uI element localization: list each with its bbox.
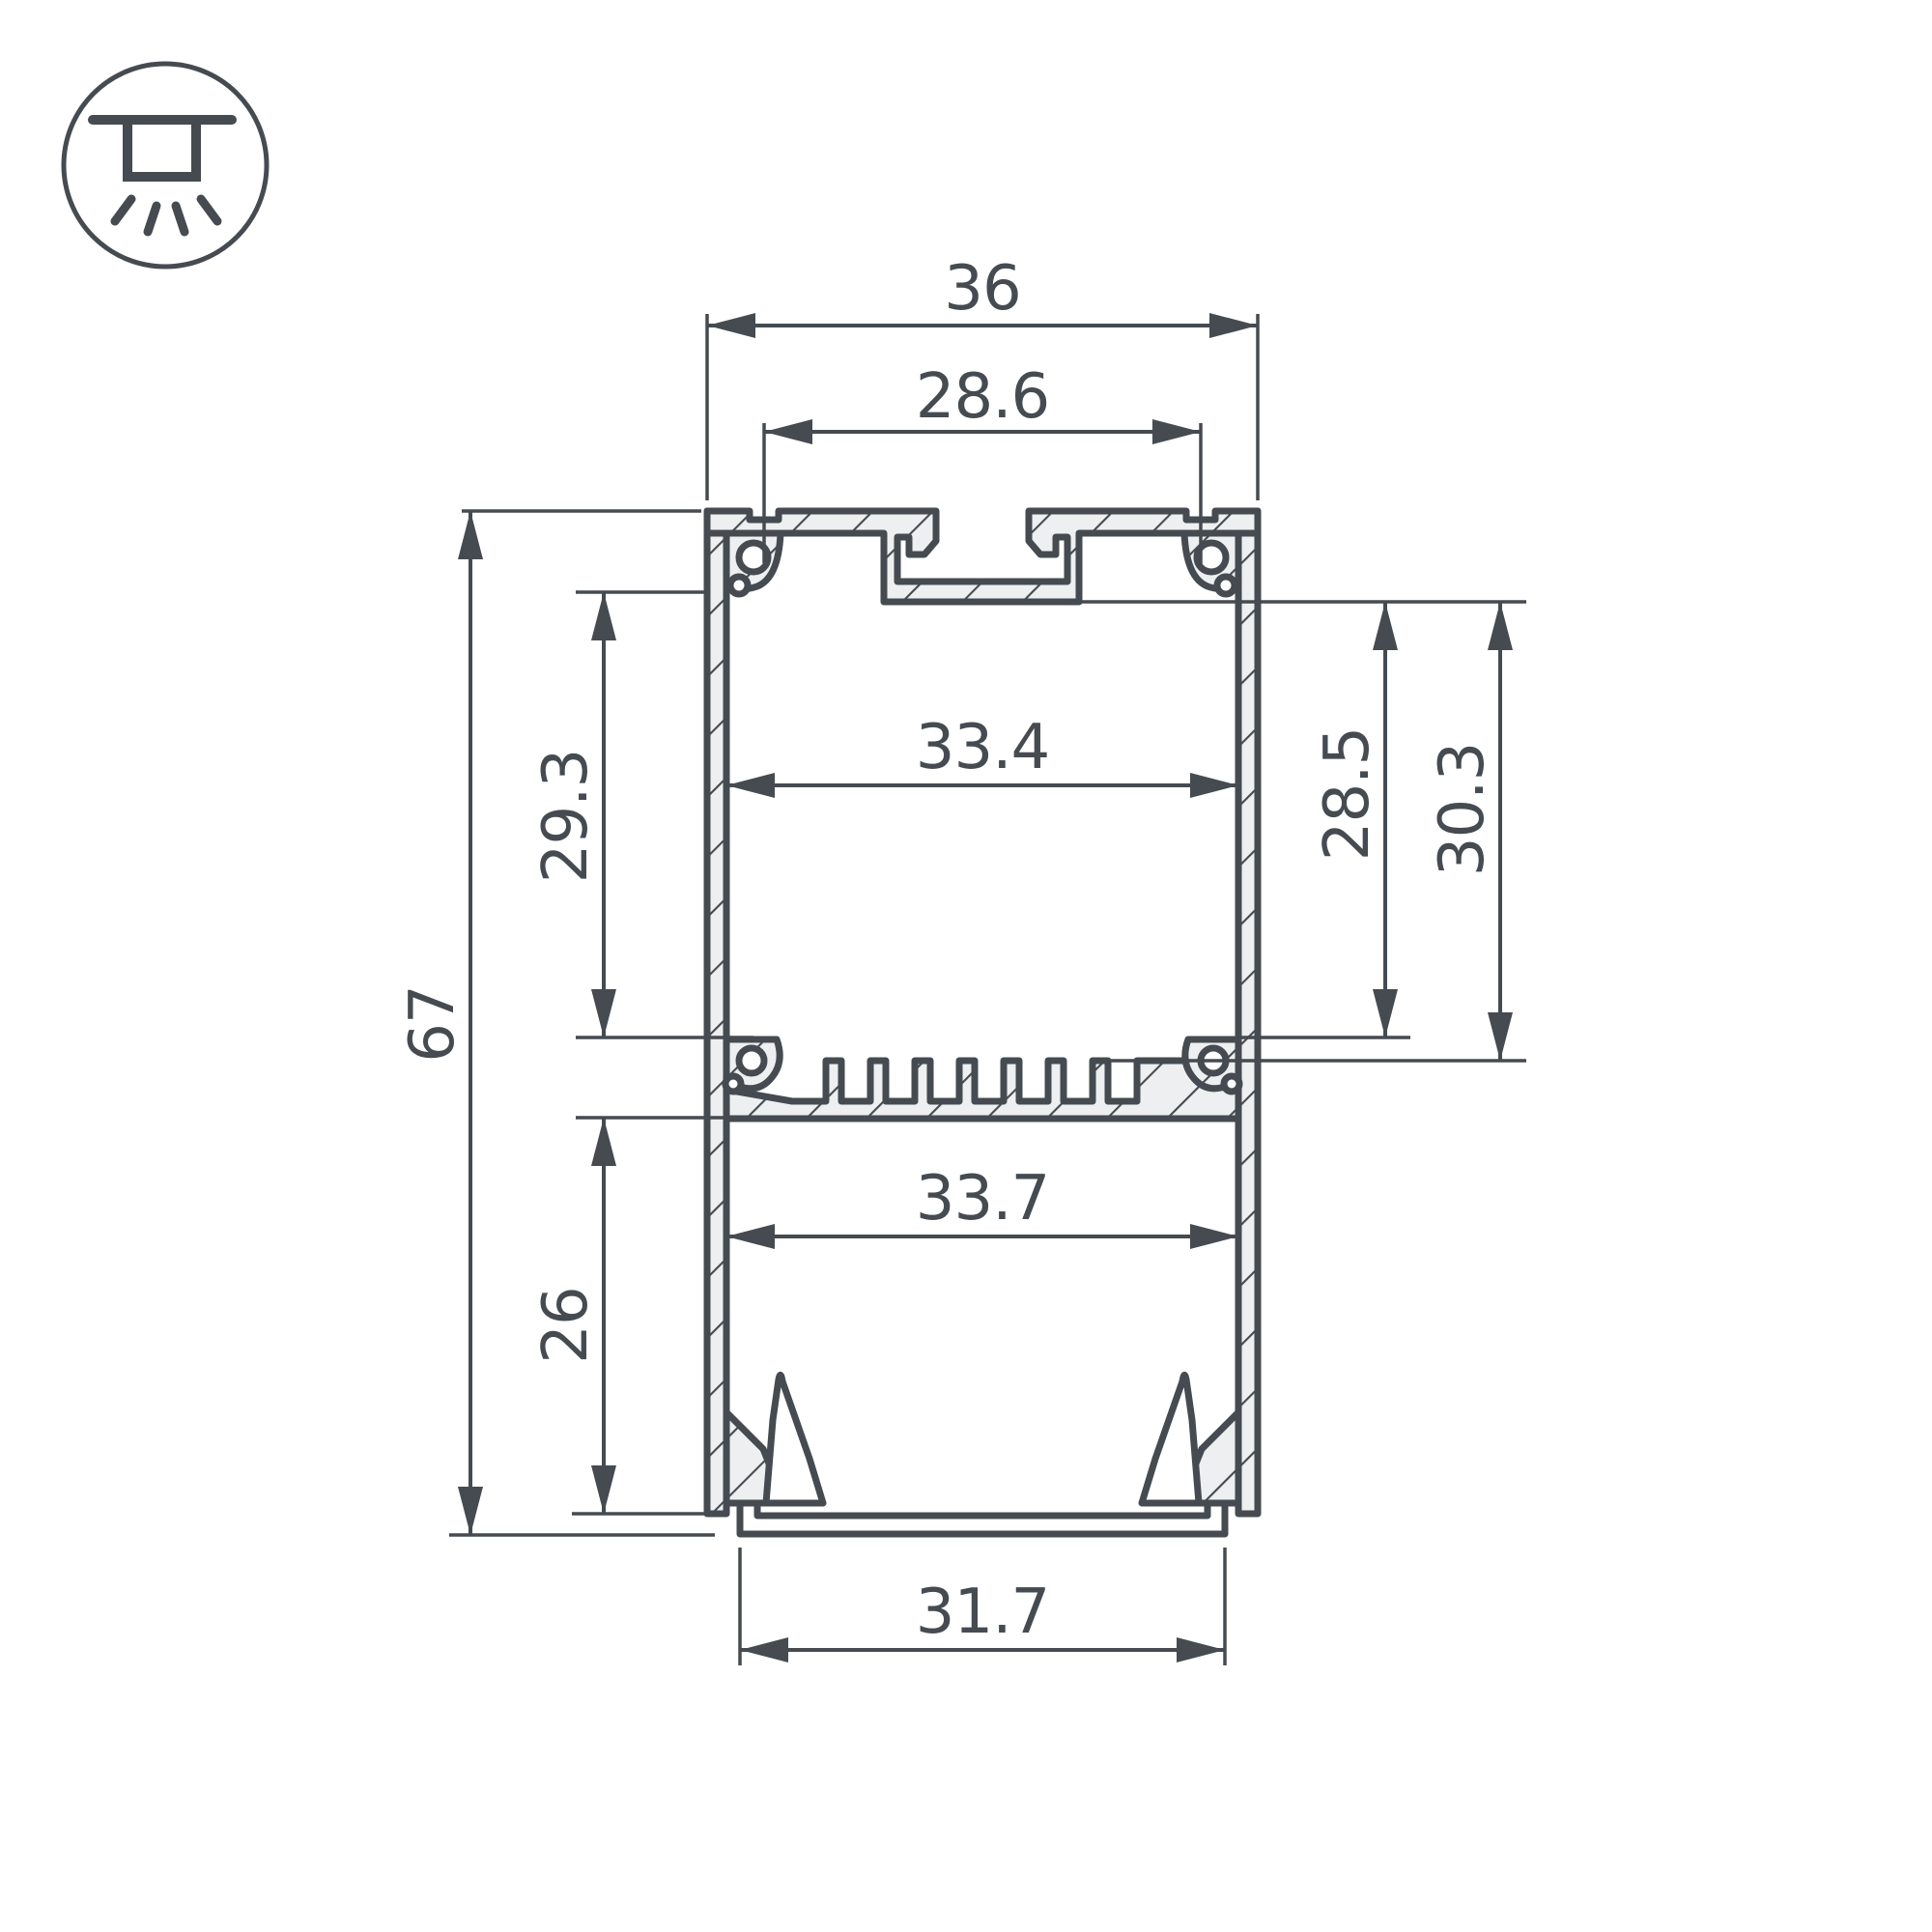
- dim-lower-inner-height-label: 26: [530, 1287, 602, 1363]
- dim-upper-inner-width: 33.4: [726, 712, 1238, 798]
- dim-mount-spacing: 28.6: [764, 361, 1201, 444]
- right-wall: [1238, 511, 1258, 1514]
- diffuser-parts: [740, 1375, 1225, 1534]
- dim-upper-inner-width-label: 33.4: [916, 712, 1050, 783]
- icon-circle: [64, 64, 267, 267]
- left-wall: [707, 511, 726, 1514]
- dim-mount-spacing-label: 28.6: [916, 361, 1050, 433]
- dim-upper-inner-height-left-label: 29.3: [530, 750, 602, 884]
- dim-outer-width-label: 36: [944, 253, 1020, 325]
- profile-body: [707, 511, 1258, 1514]
- divider-plate-with-fins: [726, 1061, 1238, 1119]
- diffuser-plate: [740, 1503, 1225, 1534]
- profile-cross-section-drawing: 36 28.6 33.4 33.7 31.7 67 29.3: [0, 0, 1932, 1932]
- right-clip-spike: [1142, 1375, 1199, 1503]
- top-left-screw-boss: [726, 533, 781, 594]
- dim-outer-width: 36: [707, 253, 1258, 338]
- top-right-screw-boss: [1184, 533, 1238, 594]
- left-clip-spike: [766, 1375, 823, 1503]
- dim-inner-height-right-2: 30.3: [1427, 602, 1513, 1061]
- technical-drawing-page: 36 28.6 33.4 33.7 31.7 67 29.3: [0, 0, 1932, 1932]
- surface-mount-light-icon: [64, 64, 267, 267]
- dim-lower-inner-width: 33.7: [726, 1163, 1238, 1249]
- dim-total-height: 67: [397, 511, 483, 1535]
- dim-total-height-label: 67: [397, 985, 469, 1062]
- icon-fixture-box: [128, 125, 196, 177]
- dim-lower-inner-width-label: 33.7: [916, 1163, 1050, 1235]
- dim-inner-height-right-1: 28.5: [1312, 602, 1398, 1037]
- divider-left-screw-boss: [725, 1039, 780, 1092]
- dim-inner-height-right-1-label: 28.5: [1312, 727, 1383, 862]
- dim-bottom-opening-width-label: 31.7: [916, 1577, 1050, 1648]
- icon-light-rays: [115, 199, 217, 232]
- top-wall-with-t-slot: [707, 511, 1258, 602]
- dim-upper-inner-height-left: 29.3: [530, 592, 616, 1037]
- dim-lower-inner-height: 26: [530, 1118, 616, 1514]
- dim-inner-height-right-2-label: 30.3: [1427, 743, 1498, 877]
- dim-bottom-opening-width: 31.7: [740, 1577, 1225, 1662]
